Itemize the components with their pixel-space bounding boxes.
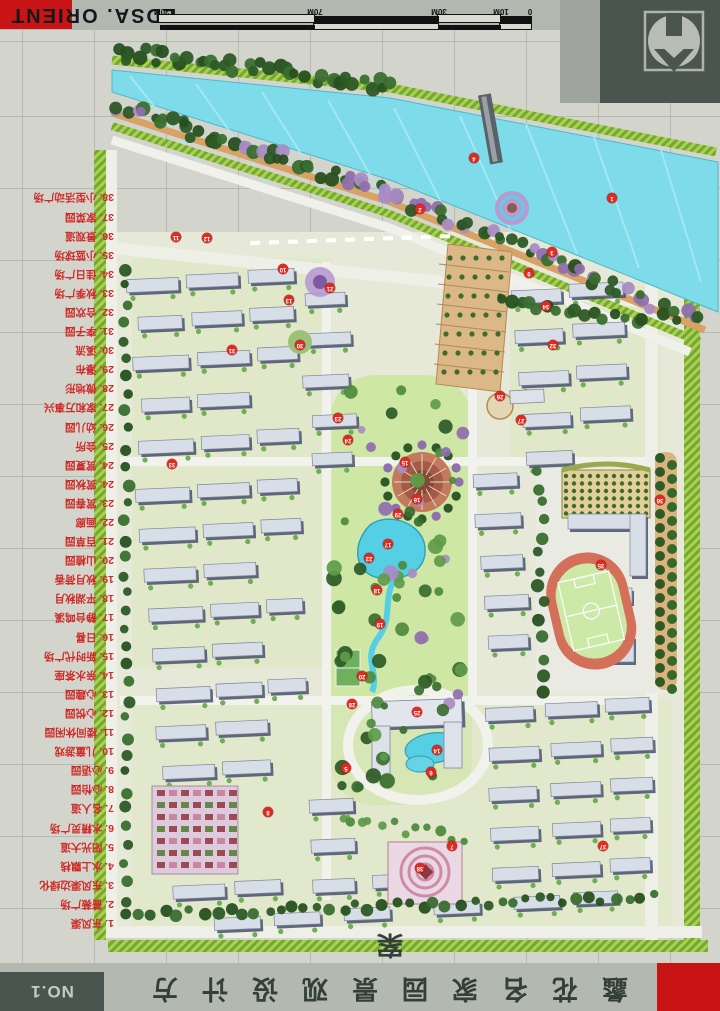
drawing-sheet: EDSA. ORIENT 0 10M 30M 70M 120M 1. 东风渠2.… (0, 0, 720, 1011)
sheet-number: NO.1 (0, 972, 104, 1011)
plan-number-marker: 24 (343, 435, 353, 445)
plan-number-marker: 22 (364, 553, 374, 563)
plan-number-marker: 23 (333, 413, 343, 423)
plan-number-marker: 18 (372, 585, 382, 595)
plan-number-marker: 4 (469, 153, 479, 163)
plan-number-marker: 31 (227, 345, 237, 355)
red-title-block (657, 963, 720, 1011)
plan-number-marker: 20 (357, 671, 367, 681)
plan-number-marker: 25 (412, 707, 422, 717)
plan-number-marker: 34 (541, 301, 551, 311)
plan-number-marker: 38 (415, 863, 425, 873)
plan-number-marker: 1 (607, 193, 617, 203)
plan-number-marker: 3 (547, 247, 557, 257)
plan-number-marker: 26 (495, 391, 505, 401)
plan-number-marker: 28 (347, 699, 357, 709)
plan-number-marker: 9 (524, 268, 534, 278)
plan-number-marker: 6 (426, 767, 436, 777)
plan-number-marker: 32 (548, 340, 558, 350)
plan-number-marker: 15 (400, 457, 410, 467)
plan-number-marker: 19 (375, 619, 385, 629)
plan-number-marker: 30 (295, 340, 305, 350)
plan-number-marker: 37 (598, 841, 608, 851)
plan-number-marker: 33 (167, 459, 177, 469)
plan-number-marker: 36 (655, 495, 665, 505)
plan-number-marker: 27 (516, 415, 526, 425)
plan-number-marker: 7 (447, 841, 457, 851)
plan-number-marker: 5 (341, 763, 351, 773)
plan-number-marker: 2 (415, 204, 425, 214)
plan-number-marker: 13 (284, 295, 294, 305)
plan-number-marker: 14 (432, 745, 442, 755)
plan-number-marker: 35 (596, 560, 606, 570)
plan-number-marker: 16 (412, 494, 422, 504)
plan-number-marker: 21 (325, 283, 335, 293)
plan-number-marker: 12 (202, 233, 212, 243)
plan-number-marker: 8 (263, 807, 273, 817)
plan-number-marker: 29 (393, 509, 403, 519)
plan-number-marker: 11 (171, 232, 181, 242)
sheet-title: 蠡花名家园景观设计方案 (104, 966, 652, 1010)
plan-number-marker: 17 (383, 539, 393, 549)
plan-number-marker: 10 (278, 264, 288, 274)
map-marker-layer: 1234567891011121314151617181920212223242… (0, 0, 720, 1011)
